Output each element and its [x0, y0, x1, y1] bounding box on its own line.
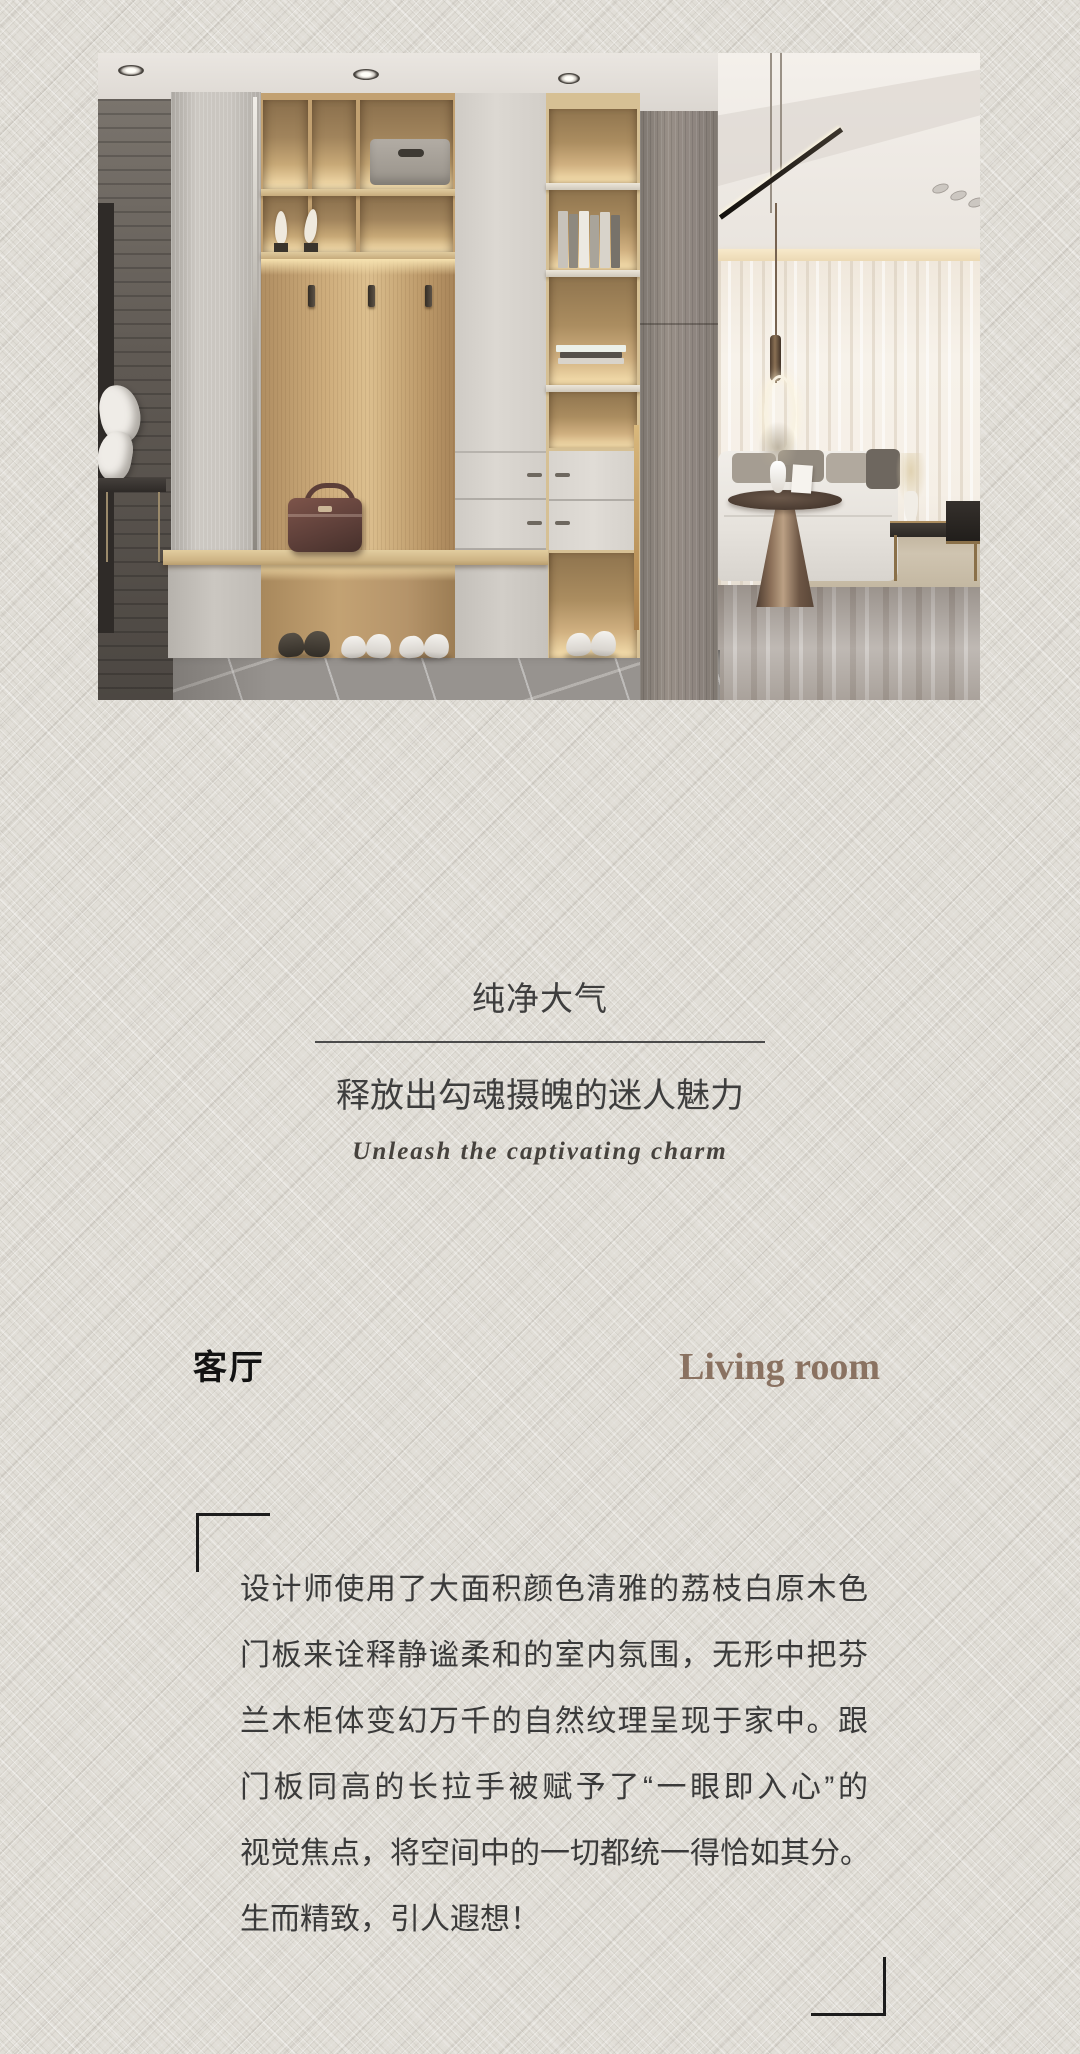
drawer-handle-icon	[527, 473, 542, 477]
storage-box	[370, 139, 450, 185]
book	[558, 211, 568, 268]
pillow	[826, 453, 870, 483]
side-table-top	[728, 490, 842, 510]
book	[600, 212, 610, 268]
downlight-icon	[353, 69, 379, 80]
shelf-niche	[312, 196, 356, 252]
dark-shoe	[303, 630, 331, 658]
book	[590, 215, 599, 268]
throw-blanket	[866, 449, 900, 489]
paragraph-line: 生而精致，引人遐想！	[240, 1887, 868, 1953]
paragraph-line: 兰木柜体变幻万千的自然纹理呈现于家中。跟	[240, 1689, 868, 1755]
downlight-icon	[118, 65, 144, 76]
book	[611, 215, 620, 268]
coat-hook-icon	[368, 285, 375, 307]
shelf-niche	[312, 100, 356, 189]
decor-stand	[274, 243, 288, 252]
room-label-row: 客厅 Living room	[193, 1340, 880, 1388]
shelf-board	[546, 183, 640, 190]
bookcase-niche	[549, 392, 637, 448]
pampas-vase	[904, 491, 918, 521]
console-leg	[158, 492, 160, 562]
shelf-board	[546, 270, 640, 277]
dried-branch	[758, 421, 798, 465]
brass-trim	[634, 425, 639, 630]
handbag	[288, 498, 362, 552]
console-leg	[106, 492, 108, 562]
pendant-cable	[770, 53, 772, 213]
magazine-stack	[558, 358, 624, 364]
pendant-cable	[780, 53, 782, 173]
long-door-handle	[253, 97, 257, 552]
shelf-niche	[263, 100, 308, 189]
shelf-board	[261, 189, 455, 196]
bookcase-niche	[549, 109, 637, 183]
magazine-stack	[556, 345, 626, 352]
paragraph-line: 门板同高的长拉手被赋予了“一眼即入心”的	[240, 1755, 868, 1821]
english-tagline: Unleash the captivating charm	[0, 1138, 1080, 1166]
drawer-handle-icon	[555, 473, 570, 477]
room-name-en: Living room	[679, 1345, 880, 1389]
side-cabinet	[946, 501, 980, 544]
hero-photo	[98, 53, 980, 700]
table-leg	[894, 535, 897, 581]
bookcase-niche	[549, 277, 637, 385]
room-name-cn: 客厅	[193, 1340, 265, 1389]
page: 纯净大气 释放出勾魂摄魄的迷人魅力 Unleash the captivatin…	[0, 0, 1080, 2054]
description-paragraph: 设计师使用了大面积颜色清雅的荔枝白原木色 门板来诠释静谧柔和的室内氛围，无形中把…	[240, 1557, 868, 1953]
bench-board	[163, 550, 548, 565]
bookcase-drawers	[549, 451, 637, 550]
decor-stand	[304, 243, 318, 252]
coat-hook-icon	[308, 285, 315, 307]
cove-light	[718, 249, 980, 261]
photo-frame	[791, 464, 813, 493]
feather-decor	[275, 211, 287, 245]
paragraph-line: 门板来诠释静谧柔和的室内氛围，无形中把芬	[240, 1623, 868, 1689]
downlight-icon	[558, 73, 580, 84]
living-room-view	[718, 53, 980, 700]
book	[579, 211, 589, 268]
drawer-handle-icon	[555, 521, 570, 525]
drawer-handle-icon	[527, 521, 542, 525]
shelf-board	[546, 385, 640, 392]
bookcase-column	[546, 93, 640, 658]
coat-hook-icon	[425, 285, 432, 307]
book	[569, 214, 578, 268]
base-cabinet	[455, 565, 548, 658]
divider-line	[315, 1041, 765, 1043]
base-cabinet	[168, 565, 261, 658]
paragraph-line: 视觉焦点，将空间中的一切都统一得恰如其分。	[240, 1821, 868, 1887]
white-sneaker	[565, 632, 592, 657]
under-shelf-glow	[261, 259, 455, 275]
shelf-board	[261, 252, 455, 259]
section-subtitle: 释放出勾魂摄魄的迷人魅力	[0, 1068, 1080, 1117]
corner-bracket-bottom-right	[811, 1957, 886, 2016]
grey-wood-panel	[640, 111, 718, 700]
shelf-niche	[360, 196, 453, 252]
under-bench-glow	[261, 565, 455, 581]
section-title: 纯净大气	[0, 972, 1080, 1020]
white-sneaker	[340, 635, 366, 659]
paragraph-line: 设计师使用了大面积颜色清雅的荔枝白原木色	[240, 1557, 868, 1623]
console-table	[98, 478, 166, 492]
